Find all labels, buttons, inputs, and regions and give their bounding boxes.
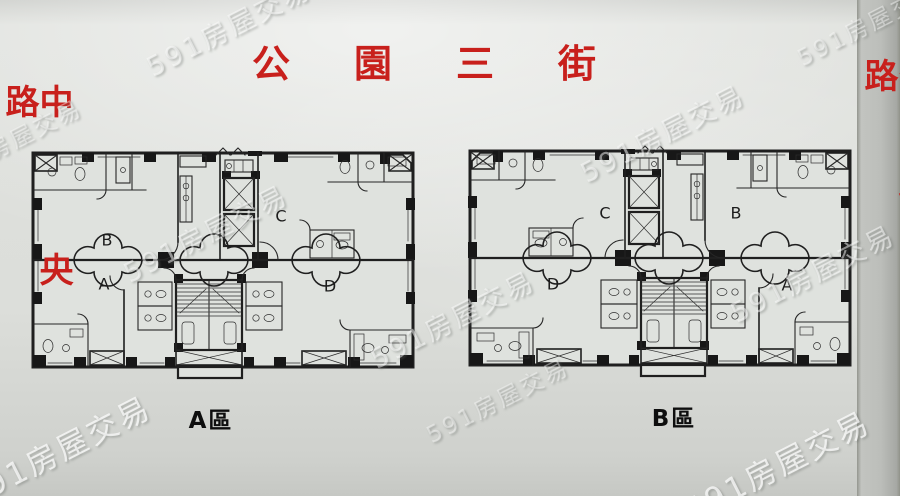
watermark-text: 591房屋交易 [139,0,318,84]
floorplan-zone-a [28,148,420,396]
plan-zone-label-a: A區 [189,401,234,435]
street-label-top: 公園三街 [252,44,660,86]
floorplan-zone-b [463,146,855,394]
floorplan-drawing-a [28,148,420,396]
floorplan-drawing-b [463,146,855,394]
plan-zone-label-b: B區 [652,399,697,433]
watermark-text: 591房屋交易 [0,383,158,496]
floorplan-photo: 公園三街 中央路 公北三路 [0,0,900,496]
page-edge-shadow [857,0,900,496]
watermark-text: 591房屋交易 [675,398,877,496]
